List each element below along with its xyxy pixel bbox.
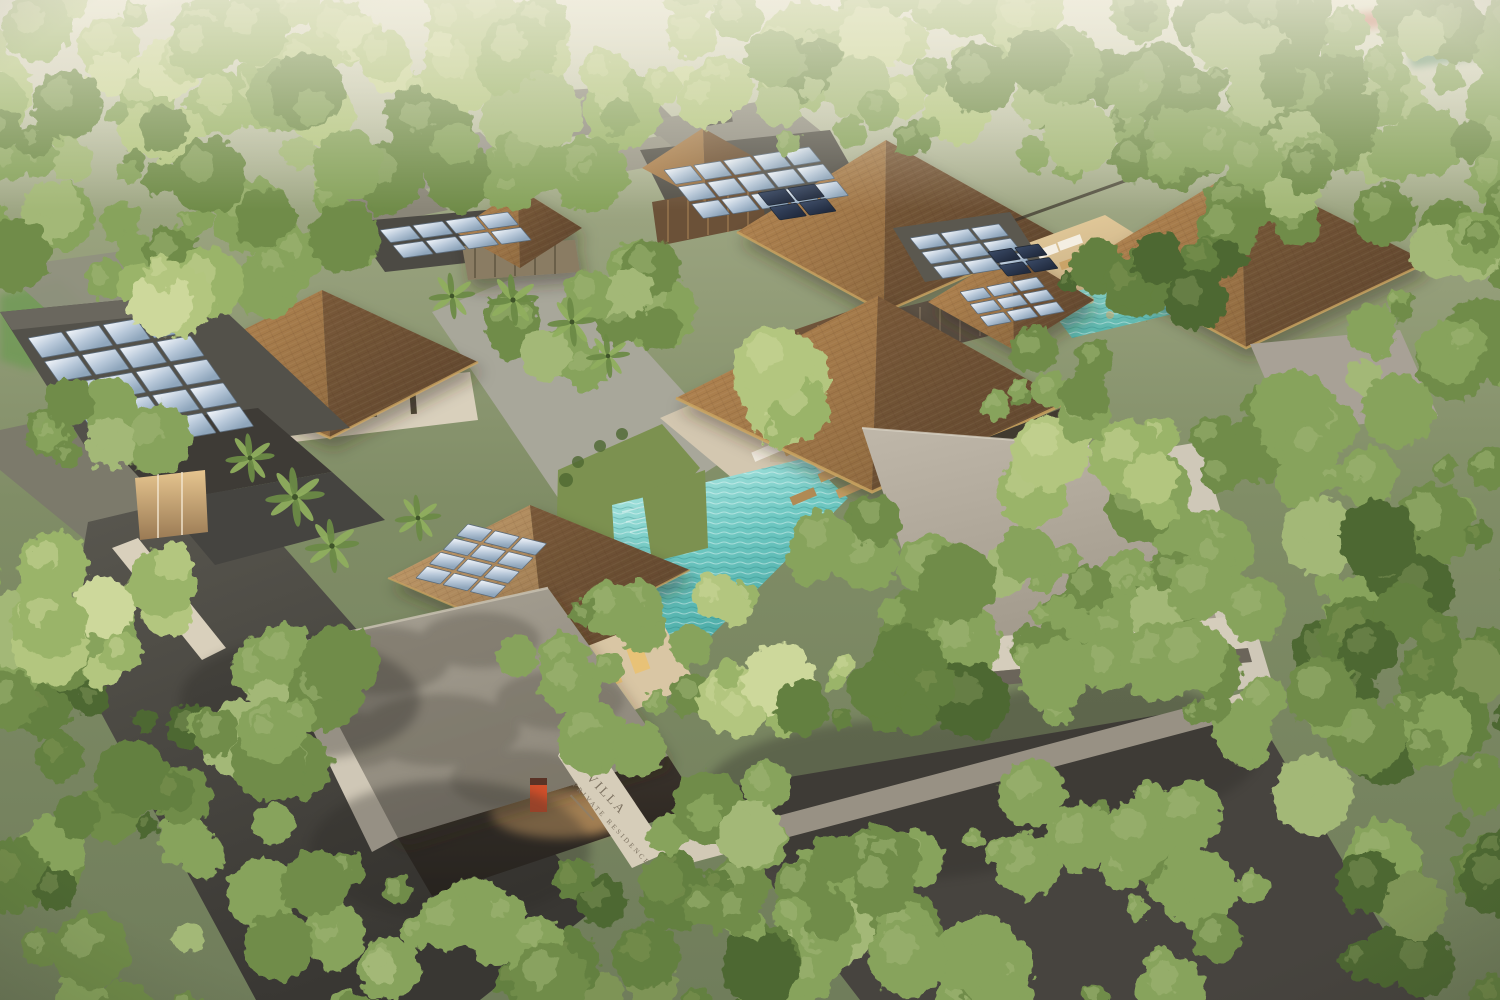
villa-estate-render: VILLA PRIVATE RESIDENCE: [0, 0, 1500, 1000]
vignette: [0, 0, 1500, 1000]
render-canvas: VILLA PRIVATE RESIDENCE: [0, 0, 1500, 1000]
